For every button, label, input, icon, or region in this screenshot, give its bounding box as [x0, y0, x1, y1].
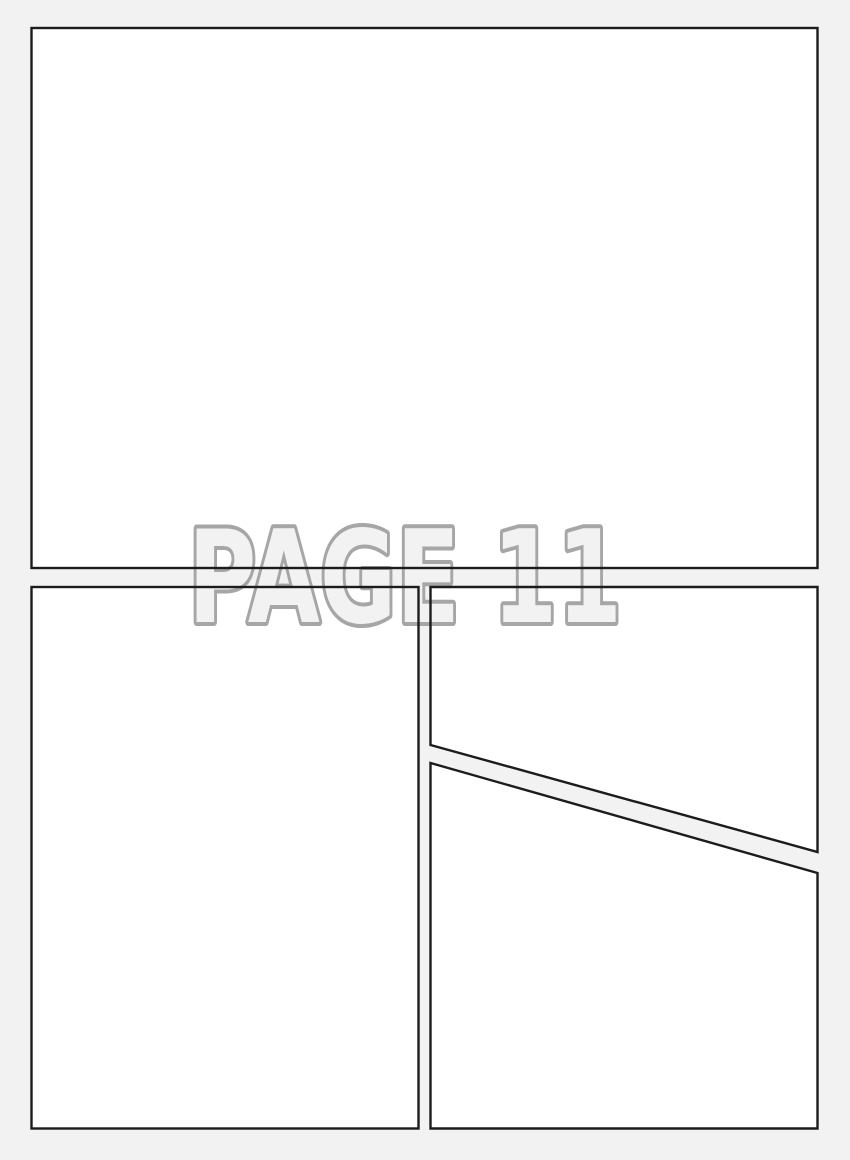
top-panel — [32, 28, 818, 568]
bottom-left-panel — [32, 587, 419, 1129]
comic-page-template: PAGE 11 — [0, 0, 850, 1160]
comic-page-svg: PAGE 11 — [0, 0, 850, 1160]
page-number-label: PAGE 11 — [188, 504, 622, 653]
